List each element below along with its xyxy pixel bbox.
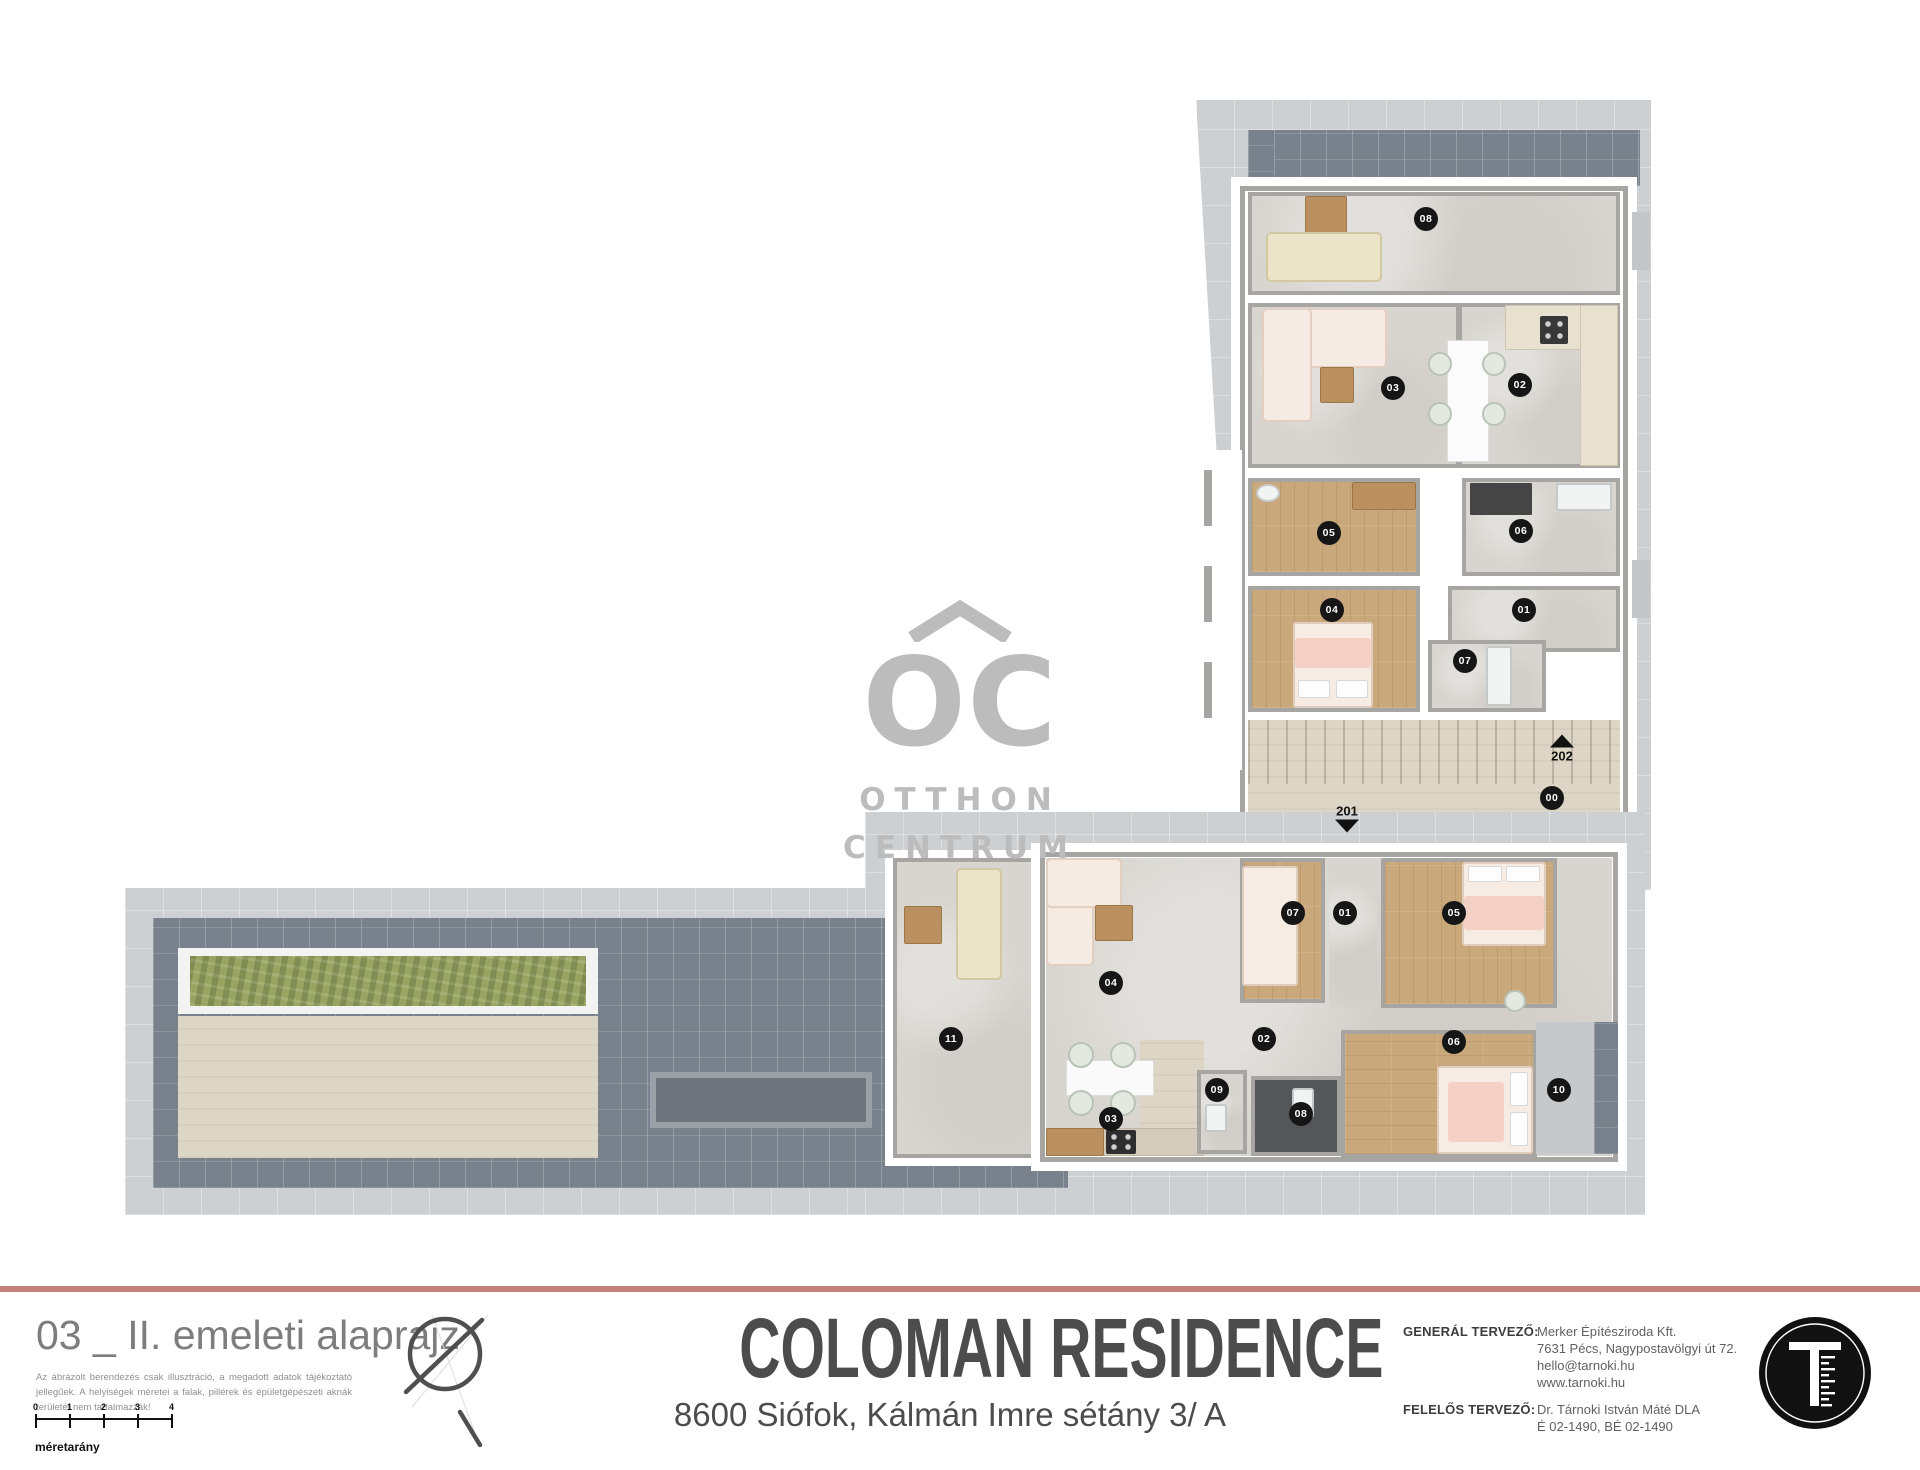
general-designer-line: www.tarnoki.hu (1537, 1374, 1777, 1391)
watermark-line1: OTTHON (830, 782, 1090, 818)
scale-tick-number: 2 (101, 1402, 106, 1412)
room-marker-06: 06 (1442, 1030, 1466, 1054)
architect-logo (1758, 1316, 1872, 1430)
project-address: 8600 Siófok, Kálmán Imre sétány 3/ A (640, 1398, 1260, 1431)
otthon-centrum-watermark: OC OTTHON CENTRUM (830, 600, 1090, 866)
general-designer-line: hello@tarnoki.hu (1537, 1357, 1777, 1374)
responsible-designer-label: FELELŐS TERVEZŐ: (1403, 1402, 1535, 1417)
scale-bar: 01234 (35, 1402, 195, 1432)
scale-tick-number: 0 (33, 1402, 38, 1412)
scale-tick-mark (171, 1414, 173, 1428)
room-marker-09: 09 (1205, 1078, 1229, 1102)
room-marker-03: 03 (1099, 1107, 1123, 1131)
room-marker-11: 11 (939, 1027, 963, 1051)
north-compass-icon (400, 1312, 495, 1447)
scale-tick-number: 3 (135, 1402, 140, 1412)
sheet-title: 03 _ II. emeleti alaprajz (36, 1312, 460, 1359)
scale-tick-number: 4 (169, 1402, 174, 1412)
room-marker-07: 07 (1281, 901, 1305, 925)
room-marker-02: 02 (1252, 1027, 1276, 1051)
general-designer-label: GENERÁL TERVEZŐ: (1403, 1324, 1539, 1339)
scale-tick-mark (137, 1414, 139, 1428)
room-marker-08: 08 (1414, 207, 1438, 231)
scale-tick-mark (69, 1414, 71, 1428)
stair-arrow-201: 201 (1335, 804, 1359, 833)
room-marker-05: 05 (1442, 901, 1466, 925)
room-marker-08: 08 (1289, 1102, 1313, 1126)
floorplan-sheet: 0803020506040107000701050411020609100803… (0, 0, 1920, 1470)
room-marker-04: 04 (1099, 971, 1123, 995)
stair-flight-number: 201 (1336, 804, 1358, 819)
stair-flight-number: 202 (1551, 749, 1573, 764)
room-marker-02: 02 (1508, 373, 1532, 397)
general-designer-info: Merker Építésziroda Kft.7631 Pécs, Nagyp… (1537, 1323, 1777, 1391)
scale-tick-mark (35, 1414, 37, 1428)
watermark-brand-mark: OC (830, 642, 1090, 764)
room-marker-04: 04 (1320, 598, 1344, 622)
room-marker-01: 01 (1333, 901, 1357, 925)
arrow-down-icon (1335, 820, 1359, 833)
scale-bar-label: méretarány (35, 1440, 100, 1454)
responsible-designer-line: É 02-1490, BÉ 02-1490 (1537, 1418, 1777, 1435)
room-marker-05: 05 (1317, 521, 1341, 545)
stair-arrow-202: 202 (1550, 735, 1574, 764)
responsible-designer-info: Dr. Tárnoki István Máté DLAÉ 02-1490, BÉ… (1537, 1401, 1777, 1435)
room-marker-10: 10 (1547, 1078, 1571, 1102)
arrow-up-icon (1550, 735, 1574, 748)
general-designer-line: 7631 Pécs, Nagypostavölgyi út 72. (1537, 1340, 1777, 1357)
footer-divider (0, 1286, 1920, 1292)
general-designer-line: Merker Építésziroda Kft. (1537, 1323, 1777, 1340)
room-marker-07: 07 (1453, 649, 1477, 673)
project-name: COLOMAN RESIDENCE (739, 1306, 1161, 1390)
scale-tick-number: 1 (67, 1402, 72, 1412)
responsible-designer-line: Dr. Tárnoki István Máté DLA (1537, 1401, 1777, 1418)
room-marker-03: 03 (1381, 376, 1405, 400)
scale-tick-mark (103, 1414, 105, 1428)
watermark-line2: CENTRUM (830, 830, 1090, 866)
room-marker-00: 00 (1540, 786, 1564, 810)
room-marker-01: 01 (1512, 598, 1536, 622)
room-marker-06: 06 (1509, 519, 1533, 543)
